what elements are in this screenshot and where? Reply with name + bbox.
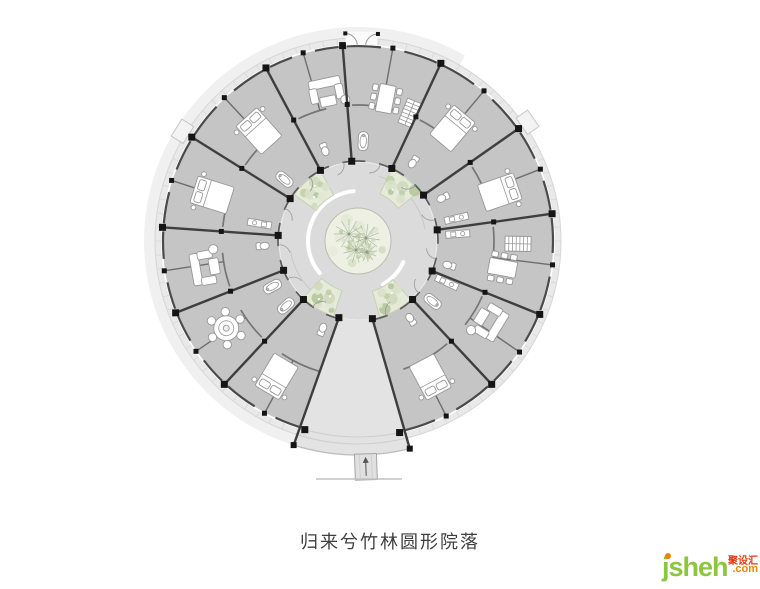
plan-caption: 归来兮竹林圆形院落 [300, 528, 480, 554]
page: 归来兮竹林圆形院落 jsheh 聚设汇 .com [0, 0, 760, 589]
furniture-stair [505, 236, 531, 251]
center-trees [325, 208, 391, 274]
floor-plan [0, 0, 760, 589]
furniture-counter [446, 230, 470, 239]
watermark-suffix: .com [732, 563, 758, 575]
floor-plan-svg [0, 0, 760, 589]
watermark-dot-icon [665, 553, 671, 559]
entry-door [345, 31, 378, 45]
watermark-name: jsheh [662, 554, 728, 581]
watermark-logo: jsheh 聚设汇 .com [662, 550, 758, 586]
furniture-wc [256, 242, 269, 250]
furniture-tub [358, 131, 369, 150]
entrance-ramp [354, 453, 377, 480]
layer-door [343, 31, 380, 46]
